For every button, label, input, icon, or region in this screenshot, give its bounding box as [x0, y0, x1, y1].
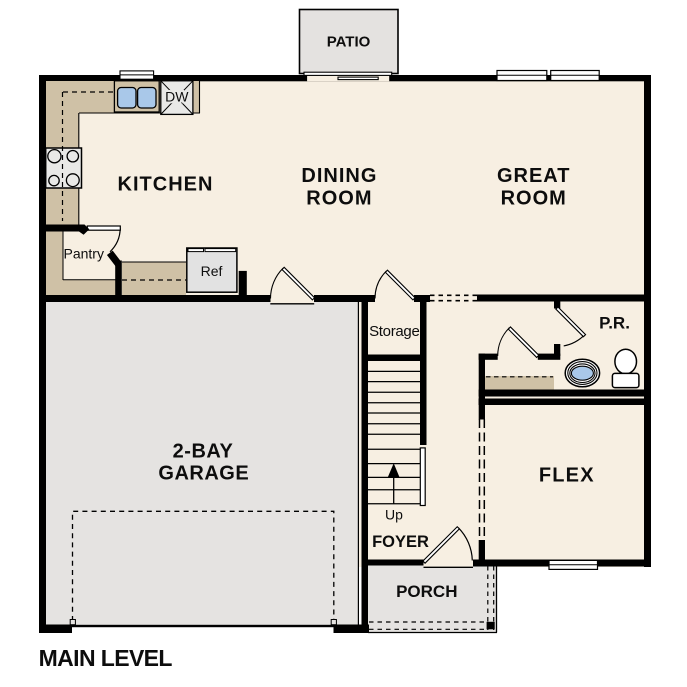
svg-text:ROOM: ROOM	[501, 188, 567, 210]
svg-text:Storage: Storage	[369, 323, 419, 340]
svg-text:DINING: DINING	[301, 165, 377, 187]
svg-text:FLEX: FLEX	[539, 464, 595, 486]
svg-text:PATIO: PATIO	[327, 33, 371, 50]
svg-text:MAIN LEVEL: MAIN LEVEL	[39, 645, 173, 671]
svg-text:Pantry: Pantry	[64, 246, 104, 262]
svg-text:KITCHEN: KITCHEN	[118, 173, 214, 195]
svg-text:P.R.: P.R.	[599, 314, 630, 333]
svg-text:GARAGE: GARAGE	[158, 463, 249, 485]
svg-text:DW: DW	[165, 89, 189, 105]
svg-text:2-BAY: 2-BAY	[173, 441, 234, 463]
svg-text:ROOM: ROOM	[306, 188, 372, 210]
svg-text:GREAT: GREAT	[497, 165, 571, 187]
svg-text:PORCH: PORCH	[396, 582, 457, 601]
svg-text:FOYER: FOYER	[372, 533, 429, 551]
svg-text:Ref: Ref	[201, 263, 223, 279]
svg-text:Up: Up	[385, 507, 403, 523]
